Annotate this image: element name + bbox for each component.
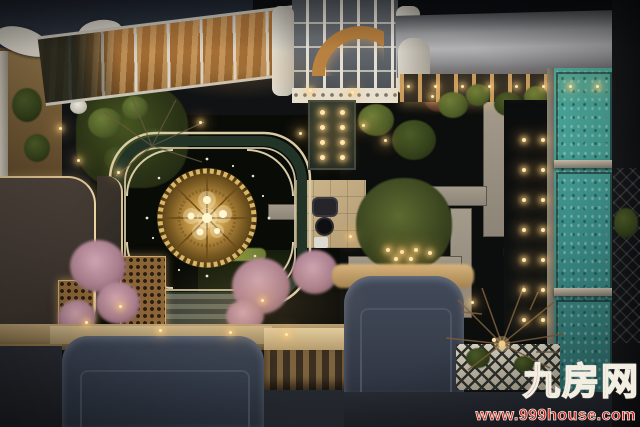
- light-dot: [261, 299, 264, 302]
- shrub: [12, 88, 42, 122]
- light-dot: [340, 125, 345, 130]
- marble-walkway: [310, 102, 354, 168]
- light-dot: [340, 140, 345, 145]
- bottom-left-block: [0, 344, 62, 427]
- shrub: [466, 84, 490, 106]
- tree-canopy: [392, 120, 436, 160]
- light-dot: [541, 288, 545, 292]
- light-dot: [541, 198, 545, 202]
- light-dot: [340, 110, 345, 115]
- light-dot: [320, 155, 325, 160]
- light-dot: [522, 168, 526, 172]
- blossom-tree: [96, 282, 140, 324]
- light-dot: [428, 251, 432, 255]
- light-dot: [522, 138, 526, 142]
- light-dot: [431, 95, 434, 98]
- light-dot: [349, 235, 352, 238]
- lit-ledge: [264, 328, 348, 350]
- light-dot: [285, 333, 288, 336]
- watermark-site-name: 九房网: [523, 351, 640, 405]
- light-dot: [542, 85, 545, 88]
- light-dot: [488, 85, 491, 88]
- dark-roof-slope: [264, 390, 348, 427]
- roof-panel-line: [80, 370, 250, 427]
- light-dot: [461, 85, 464, 88]
- shrub: [438, 92, 468, 118]
- light-dot: [340, 155, 345, 160]
- pool-glass-divider: [554, 160, 614, 168]
- shrub: [358, 104, 394, 136]
- light-dot: [386, 248, 390, 252]
- light-dot: [541, 228, 545, 232]
- light-dot: [541, 318, 545, 322]
- light-dot: [541, 258, 545, 262]
- watermark-site-url: www.999house.com: [476, 407, 636, 425]
- light-dot: [299, 132, 302, 135]
- facade-lattice: [613, 168, 640, 343]
- shrub: [24, 134, 50, 162]
- light-dot: [394, 257, 398, 261]
- courtyard-aerial-photo: 九房网 www.999house.com: [0, 0, 640, 427]
- light-dot: [522, 288, 526, 292]
- light-dot: [522, 228, 526, 232]
- light-dot: [569, 85, 572, 88]
- light-dot: [85, 321, 88, 324]
- light-dot: [414, 248, 418, 252]
- shrub: [614, 208, 638, 238]
- light-dot: [320, 110, 325, 115]
- outdoor-sofa: [314, 199, 336, 215]
- light-dot: [320, 125, 325, 130]
- light-dot: [400, 250, 404, 254]
- light-dot: [522, 198, 526, 202]
- light-dot: [77, 159, 80, 162]
- light-dot: [351, 91, 354, 94]
- light-dot: [471, 301, 474, 304]
- bare-tree-branches: [92, 92, 212, 188]
- light-dot: [117, 171, 120, 174]
- light-dot: [159, 329, 162, 332]
- carved-frieze-band: [292, 88, 398, 103]
- light-dot: [362, 124, 365, 127]
- light-dot: [541, 138, 545, 142]
- light-dot: [309, 89, 312, 92]
- lit-canopy-slats: [264, 350, 348, 390]
- light-dot: [522, 318, 526, 322]
- light-dot: [119, 305, 122, 308]
- white-eave-column: [272, 6, 294, 96]
- light-dot: [596, 85, 599, 88]
- light-dot: [409, 257, 413, 261]
- light-dot: [384, 139, 387, 142]
- light-dot: [515, 85, 518, 88]
- round-table: [317, 219, 332, 234]
- light-dot: [229, 331, 232, 334]
- light-dot: [407, 85, 410, 88]
- light-dot: [541, 168, 545, 172]
- light-dot: [434, 85, 437, 88]
- light-dot: [522, 258, 526, 262]
- light-dot: [320, 140, 325, 145]
- large-tree-canopy: [356, 178, 452, 272]
- light-dot: [199, 121, 202, 124]
- light-dot: [59, 127, 62, 130]
- arch-under-skylight: [312, 26, 384, 76]
